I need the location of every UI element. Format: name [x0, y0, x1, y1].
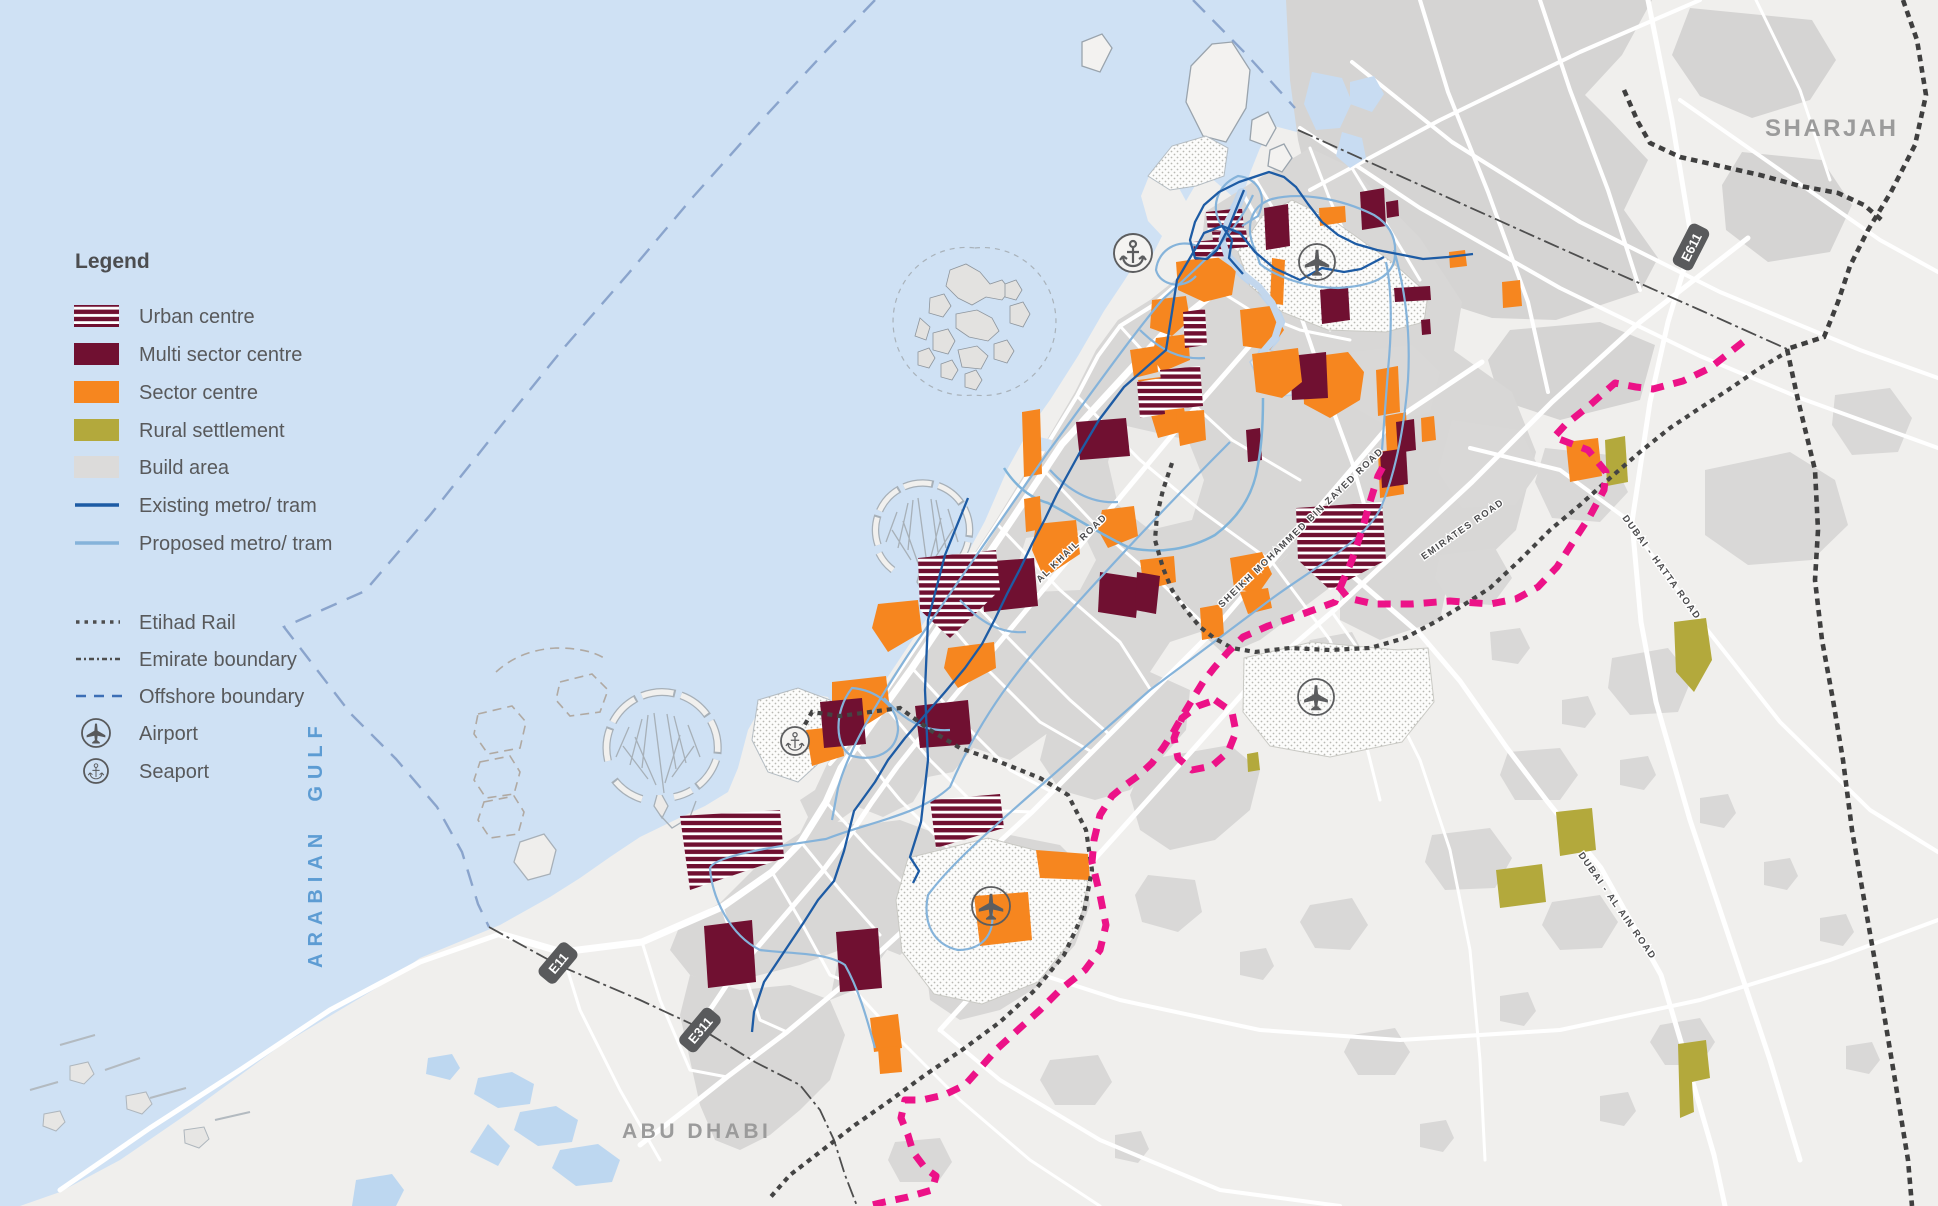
- svg-text:Airport: Airport: [139, 723, 198, 745]
- svg-text:Emirate boundary: Emirate boundary: [139, 649, 297, 671]
- svg-text:Urban centre: Urban centre: [139, 306, 255, 328]
- svg-text:Offshore boundary: Offshore boundary: [139, 686, 304, 708]
- svg-text:Proposed metro/ tram: Proposed metro/ tram: [139, 533, 332, 555]
- svg-text:Sector centre: Sector centre: [139, 382, 258, 404]
- svg-text:Multi sector centre: Multi sector centre: [139, 344, 302, 366]
- svg-text:ARABIAN GULF: ARABIAN GULF: [305, 719, 327, 968]
- svg-text:SHARJAH: SHARJAH: [1765, 115, 1899, 142]
- svg-text:Build area: Build area: [139, 457, 230, 479]
- svg-text:Existing metro/ tram: Existing metro/ tram: [139, 495, 317, 517]
- svg-text:Rural settlement: Rural settlement: [139, 420, 285, 442]
- svg-text:ABU DHABI: ABU DHABI: [622, 1120, 771, 1143]
- svg-text:Seaport: Seaport: [139, 761, 209, 783]
- svg-text:Legend: Legend: [75, 250, 150, 273]
- svg-text:Etihad Rail: Etihad Rail: [139, 612, 236, 634]
